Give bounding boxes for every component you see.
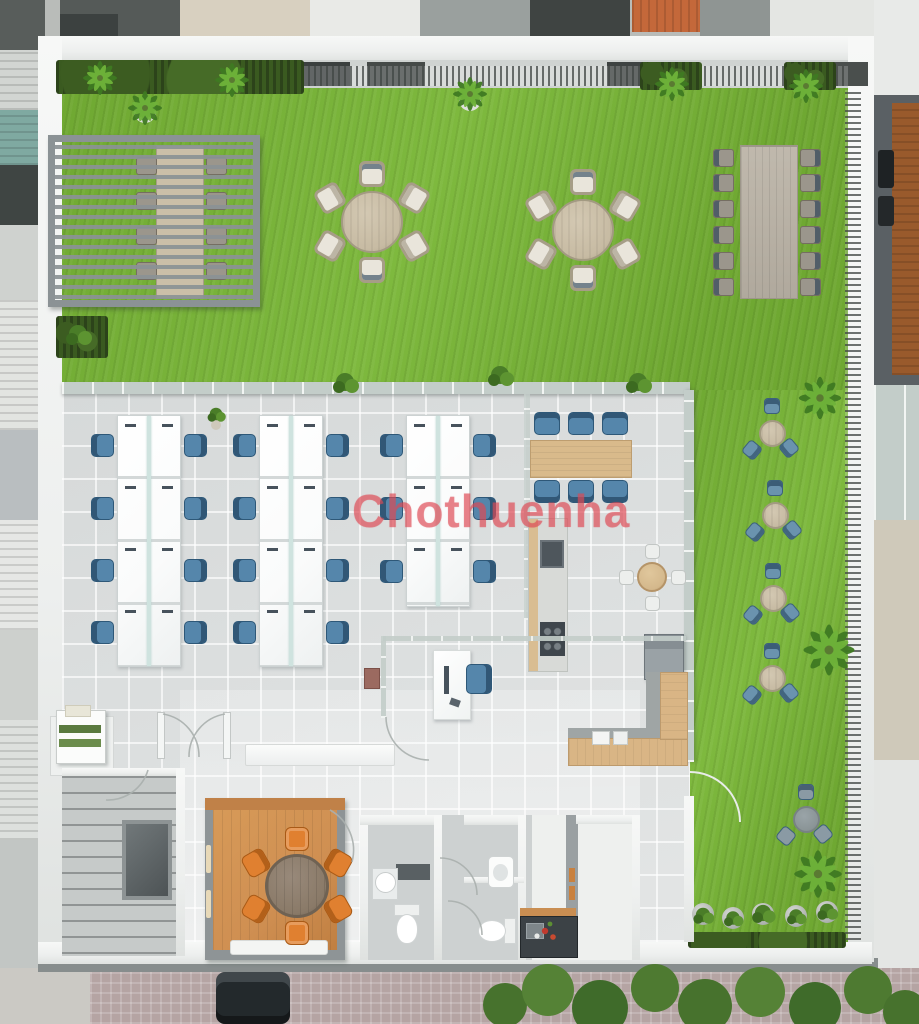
planter-pot <box>692 903 714 925</box>
office-wall-right-lower <box>684 796 694 942</box>
desk-monitors <box>267 424 278 658</box>
wall-light-slot <box>206 890 211 918</box>
bathroom-block <box>360 815 532 960</box>
outdoor-bench-chair <box>800 200 821 218</box>
pergola <box>48 135 260 307</box>
roof-block <box>874 520 919 760</box>
desk-monitors <box>304 424 315 658</box>
wall-hung-sink <box>488 856 514 888</box>
office-chair <box>91 621 114 644</box>
pantry-chair <box>534 412 560 435</box>
kitchenette-counter <box>520 916 578 958</box>
office-chair <box>233 434 256 457</box>
meeting-table <box>265 854 329 918</box>
garden-round-table <box>341 191 403 253</box>
toilet-bowl <box>396 914 418 944</box>
office-chair <box>473 434 496 457</box>
bath-partition <box>434 815 442 960</box>
office-printer <box>56 710 106 764</box>
stair-wall-h <box>62 768 182 776</box>
manager-glass-partition-h <box>381 636 686 641</box>
meeting-wall-top-wood <box>205 798 345 810</box>
hedge-planter <box>56 60 304 94</box>
desk-monitors <box>162 424 173 658</box>
office-chair <box>326 497 349 520</box>
right-railing <box>845 90 861 940</box>
bistro-chair <box>764 398 780 414</box>
toilet-bowl <box>478 920 506 942</box>
bath-wall <box>464 815 524 825</box>
printer-paper <box>65 705 91 717</box>
counter-wood-edge <box>520 908 576 916</box>
manager-chair <box>466 664 492 694</box>
hedge-planter <box>640 62 702 90</box>
bath-wall <box>360 815 368 960</box>
balcony-chair <box>878 150 894 188</box>
sidewalk <box>0 968 90 1024</box>
office-chair <box>326 621 349 644</box>
garden-chair <box>359 257 385 283</box>
wall-light-slot <box>206 845 211 873</box>
outdoor-bench-chair <box>713 149 734 167</box>
garden-chair <box>570 169 596 195</box>
garden-chair <box>570 265 596 291</box>
street-bottom <box>0 968 919 1024</box>
office-chair <box>184 434 207 457</box>
sink-basin <box>375 872 396 893</box>
watermark: Chothuenha <box>352 484 630 538</box>
entrance-door-leaf <box>223 712 231 759</box>
break-chair <box>671 570 686 585</box>
sink-bowl <box>493 864 508 881</box>
office-chair <box>184 497 207 520</box>
hedge-planter <box>784 62 836 90</box>
break-chair <box>619 570 634 585</box>
entrance-door-leaf <box>157 712 165 759</box>
outdoor-bench-chair <box>800 174 821 192</box>
parked-car <box>216 972 290 1024</box>
kitchenette-wall <box>566 815 578 919</box>
bistro-chair <box>765 563 781 579</box>
office-chair <box>326 559 349 582</box>
bath-shelf <box>396 864 430 880</box>
bistro-chair <box>764 643 780 659</box>
manager-monitor <box>444 666 449 694</box>
pantry-wood-table <box>530 440 632 478</box>
outdoor-bench-chair <box>800 226 821 244</box>
office-chair <box>473 560 496 583</box>
office-chair <box>91 497 114 520</box>
floorplan-render: Chothuenha <box>0 0 919 1024</box>
stair-void <box>122 820 172 900</box>
neighbor-buildings-right <box>874 0 919 1024</box>
coffee-counter-gray-v <box>646 672 660 738</box>
wood-accent <box>569 868 575 882</box>
parapet-top <box>38 36 872 62</box>
wood-accent <box>569 886 575 900</box>
office-chair <box>233 497 256 520</box>
planter-pot <box>752 903 774 925</box>
wood-door-panel <box>892 103 919 375</box>
outdoor-bench-chair <box>800 149 821 167</box>
outdoor-bench-chair <box>800 278 821 296</box>
desk-bank <box>117 415 181 667</box>
outdoor-bench-chair <box>800 252 821 270</box>
coffee-machine <box>592 731 610 745</box>
kitchenette-wall-top <box>576 815 640 824</box>
garden-chair <box>359 161 385 187</box>
coffee-counter-wood-h <box>568 738 688 766</box>
outdoor-bench-chair <box>713 200 734 218</box>
bistro-chair <box>798 784 814 800</box>
sideboard <box>245 744 395 766</box>
office-chair <box>380 560 403 583</box>
hedge-planter <box>688 932 846 948</box>
planter-pot <box>722 907 744 929</box>
outdoor-bench-chair <box>713 226 734 244</box>
office-chair <box>326 434 349 457</box>
break-chair <box>645 596 660 611</box>
printer-tray <box>59 739 101 747</box>
office-chair <box>380 434 403 457</box>
planter-pot <box>816 901 838 923</box>
coffee-machine <box>613 731 628 745</box>
outdoor-bench-chair <box>713 278 734 296</box>
glass-facade <box>874 385 919 520</box>
meeting-chair <box>285 921 309 945</box>
desk-monitors <box>125 424 136 658</box>
printer-tray <box>59 725 101 733</box>
office-chair <box>184 621 207 644</box>
kitchenette-wall-right <box>632 815 640 960</box>
office-glass-wall-top <box>62 382 690 394</box>
office-chair <box>184 559 207 582</box>
office-chair <box>91 559 114 582</box>
office-chair <box>233 621 256 644</box>
break-table <box>637 562 667 592</box>
tiled-roof <box>632 0 700 32</box>
kitchen-sink <box>540 540 564 568</box>
coffee-counter-wood-v <box>660 672 688 740</box>
pergola-frame <box>48 135 260 307</box>
bistro-chair <box>767 480 783 496</box>
hedge-planter <box>56 316 108 358</box>
long-outdoor-table <box>740 145 798 299</box>
office-chair <box>233 559 256 582</box>
planter-pot <box>785 905 807 927</box>
stair-wall-v <box>176 768 185 956</box>
roof-block <box>874 0 919 95</box>
manager-glass-partition-v <box>381 636 386 718</box>
desk-bank <box>259 415 323 667</box>
meeting-chair <box>285 827 309 851</box>
counter-sink <box>526 923 544 939</box>
outdoor-bench-chair <box>713 252 734 270</box>
plant-pot <box>211 420 221 430</box>
office-chair <box>91 434 114 457</box>
kitchenette-room <box>532 815 640 960</box>
outdoor-bench-chair <box>713 174 734 192</box>
break-chair <box>645 544 660 559</box>
bath-wall <box>360 815 438 825</box>
potted-plant-small <box>206 408 226 430</box>
garden-round-table <box>552 199 614 261</box>
wall-cabinet <box>364 668 380 689</box>
meeting-sideboard <box>230 940 328 955</box>
pantry-chair <box>602 412 628 435</box>
pantry-chair <box>568 412 594 435</box>
balcony-chair <box>878 196 894 226</box>
